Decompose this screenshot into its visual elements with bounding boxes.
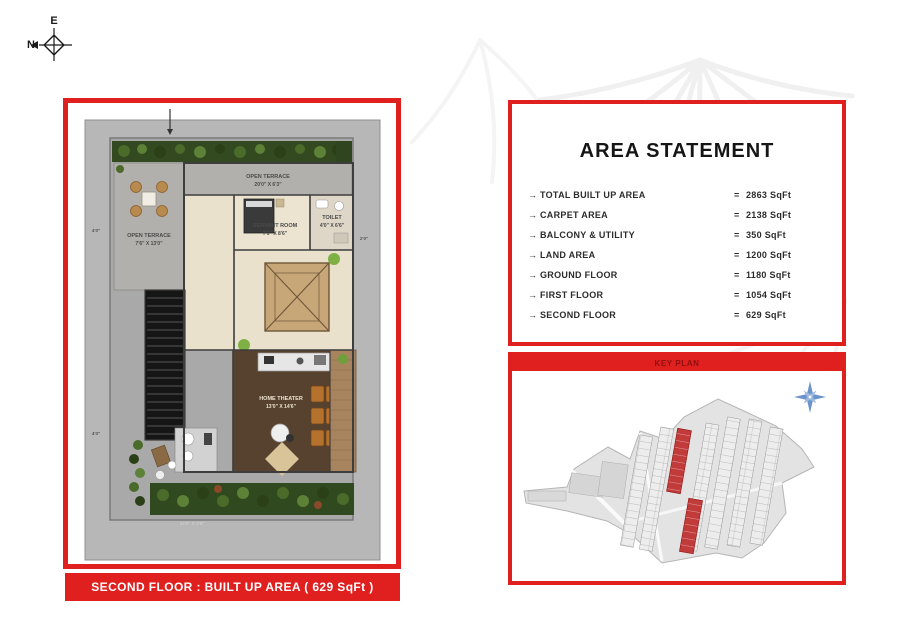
compass-arrow	[31, 28, 72, 61]
key-plan-header: KEY PLAN	[512, 356, 842, 371]
dim-left-top: 4'0"	[92, 228, 100, 233]
terrace-left	[114, 163, 184, 290]
dim-right: 2'0"	[360, 236, 368, 241]
servant-room-label: SERVANT ROOM	[253, 223, 298, 229]
key-plan-map	[512, 371, 842, 581]
area-row-value: 2138 SqFt	[746, 210, 791, 220]
area-row-label: BALCONY & UTILITY	[540, 230, 635, 240]
equals-sign: =	[734, 290, 740, 300]
arrow-bullet-icon: →	[528, 190, 537, 200]
area-row: → LAND AREA = 1200 SqFt	[512, 250, 842, 266]
terrace-left-dim: 7'6" X 13'0"	[135, 241, 163, 247]
home-theater-label: HOME THEATER	[259, 396, 303, 402]
arrow-bullet-icon: →	[528, 310, 537, 320]
equals-sign: =	[734, 310, 740, 320]
area-row-value: 2863 SqFt	[746, 190, 791, 200]
floor-caption-bar: SECOND FLOOR : BUILT UP AREA ( 629 SqFt …	[65, 573, 400, 601]
arrow-bullet-icon: →	[528, 210, 537, 220]
area-row: → FIRST FLOOR = 1054 SqFt	[512, 290, 842, 306]
area-row-value: 350 SqFt	[746, 230, 786, 240]
area-row-value: 1200 SqFt	[746, 250, 791, 260]
floor-caption-text: SECOND FLOOR : BUILT UP AREA ( 629 SqFt …	[91, 580, 373, 594]
area-statement-title: AREA STATEMENT	[512, 140, 842, 163]
utility-room	[175, 428, 217, 472]
area-row: → TOTAL BUILT UP AREA = 2863 SqFt	[512, 190, 842, 206]
area-row-value: 629 SqFt	[746, 310, 786, 320]
area-row-value: 1054 SqFt	[746, 290, 791, 300]
floor-plan-panel: OPEN TERRACE 20'0" X 6'3" OPEN TERRACE 7…	[63, 98, 401, 569]
area-row-label: CARPET AREA	[540, 210, 608, 220]
area-row: → GROUND FLOOR = 1180 SqFt	[512, 270, 842, 286]
map-compass-icon	[794, 381, 826, 413]
area-row-label: SECOND FLOOR	[540, 310, 616, 320]
area-row-value: 1180 SqFt	[746, 270, 791, 280]
area-statement-panel: AREA STATEMENT → TOTAL BUILT UP AREA = 2…	[508, 100, 846, 346]
area-row: → SECOND FLOOR = 629 SqFt	[512, 310, 842, 326]
servant-room-dim: 7'0" X 8'6"	[263, 231, 288, 237]
area-row: → CARPET AREA = 2138 SqFt	[512, 210, 842, 226]
area-row-label: GROUND FLOOR	[540, 270, 618, 280]
area-row: → BALCONY & UTILITY = 350 SqFt	[512, 230, 842, 246]
terrace-top-dim: 20'0" X 6'3"	[254, 182, 282, 188]
home-theater-dim: 13'0" X 14'6"	[266, 404, 297, 410]
toilet-label: TOILET	[322, 215, 342, 221]
arrow-bullet-icon: →	[528, 250, 537, 260]
arrow-bullet-icon: →	[528, 270, 537, 280]
dim-left-bottom: 4'0"	[92, 431, 100, 436]
terrace-left-label: OPEN TERRACE	[127, 233, 171, 239]
compass-icon: E N	[20, 8, 84, 72]
terrace-top-label: OPEN TERRACE	[246, 174, 290, 180]
area-row-label: TOTAL BUILT UP AREA	[540, 190, 646, 200]
area-row-label: FIRST FLOOR	[540, 290, 603, 300]
page: E N	[0, 0, 900, 636]
plants-bottom	[150, 483, 354, 515]
key-plan-panel: KEY PLAN	[508, 352, 846, 585]
compass-east-label: E	[50, 15, 57, 27]
equals-sign: =	[734, 190, 740, 200]
stair-black	[145, 290, 185, 440]
arrow-bullet-icon: →	[528, 290, 537, 300]
floor-plan-drawing: OPEN TERRACE 20'0" X 6'3" OPEN TERRACE 7…	[68, 103, 396, 564]
toilet-dim: 4'0" X 6'6"	[320, 223, 345, 229]
equals-sign: =	[734, 230, 740, 240]
area-row-label: LAND AREA	[540, 250, 595, 260]
stair-wood	[265, 263, 329, 331]
home-theater-room	[233, 350, 339, 476]
dim-bottom: 12'0" X 3'6"	[180, 521, 204, 526]
equals-sign: =	[734, 270, 740, 280]
arrow-bullet-icon: →	[528, 230, 537, 240]
equals-sign: =	[734, 250, 740, 260]
key-plan-title: KEY PLAN	[654, 359, 699, 368]
corridor	[184, 195, 234, 350]
equals-sign: =	[734, 210, 740, 220]
